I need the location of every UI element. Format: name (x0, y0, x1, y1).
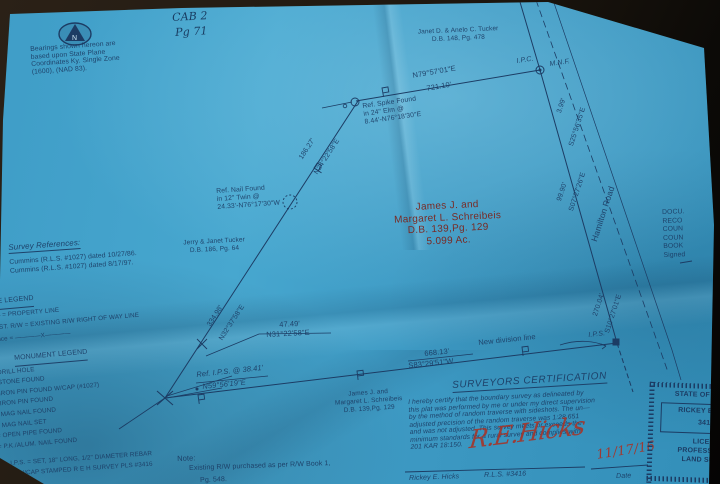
handwritten-cabinet: CAB 2 (172, 12, 208, 22)
note-title: Note: (177, 454, 196, 463)
surveyor-signature: R.E.Hicks (469, 422, 585, 444)
recorder-stamp-line: Signed (663, 251, 686, 260)
signer-license: R.L.S. #3416 (484, 471, 526, 480)
seal-line: LAND SU (681, 456, 714, 464)
photo-of-survey-plat: N Bearings shown hereon are based upon S… (0, 0, 720, 484)
ref-nail-note: Ref. Nail Found in 12" Twin @ 24.33'-N76… (216, 184, 280, 212)
seal-hatch-bottom (646, 476, 716, 483)
neighbor-south-label: James J. and Margaret L. Schreibeis D.B.… (331, 387, 406, 416)
note-line: Pg. 548. (200, 476, 227, 484)
bearings-note: Bearings shown hereon are based upon Sta… (30, 40, 121, 76)
handwritten-page: Pg 71 (175, 27, 208, 37)
seal-hatch-top (650, 382, 720, 389)
seal-line: PROFESSI (677, 447, 714, 455)
monument-legend: MONUMENT LEGEND = DRILL HOLE = STONE FOU… (0, 347, 104, 453)
surveyor-seal: STATE OF K RICKEY E. 3416 LICEN PROFESSI… (646, 382, 719, 484)
recorder-stamp: DOCU. RECO COUN COUN BOOK Signed (662, 208, 686, 260)
svg-text:N: N (72, 35, 77, 42)
seal-name: RICKEY E. (678, 407, 715, 415)
recorder-stamp-line: DOCU. (662, 208, 685, 217)
date-label: Date (616, 472, 631, 481)
subject-parcel-label: James J. and Margaret L. Schreibeis D.B.… (388, 198, 508, 249)
blueprint-paper: N Bearings shown hereon are based upon S… (0, 0, 720, 484)
